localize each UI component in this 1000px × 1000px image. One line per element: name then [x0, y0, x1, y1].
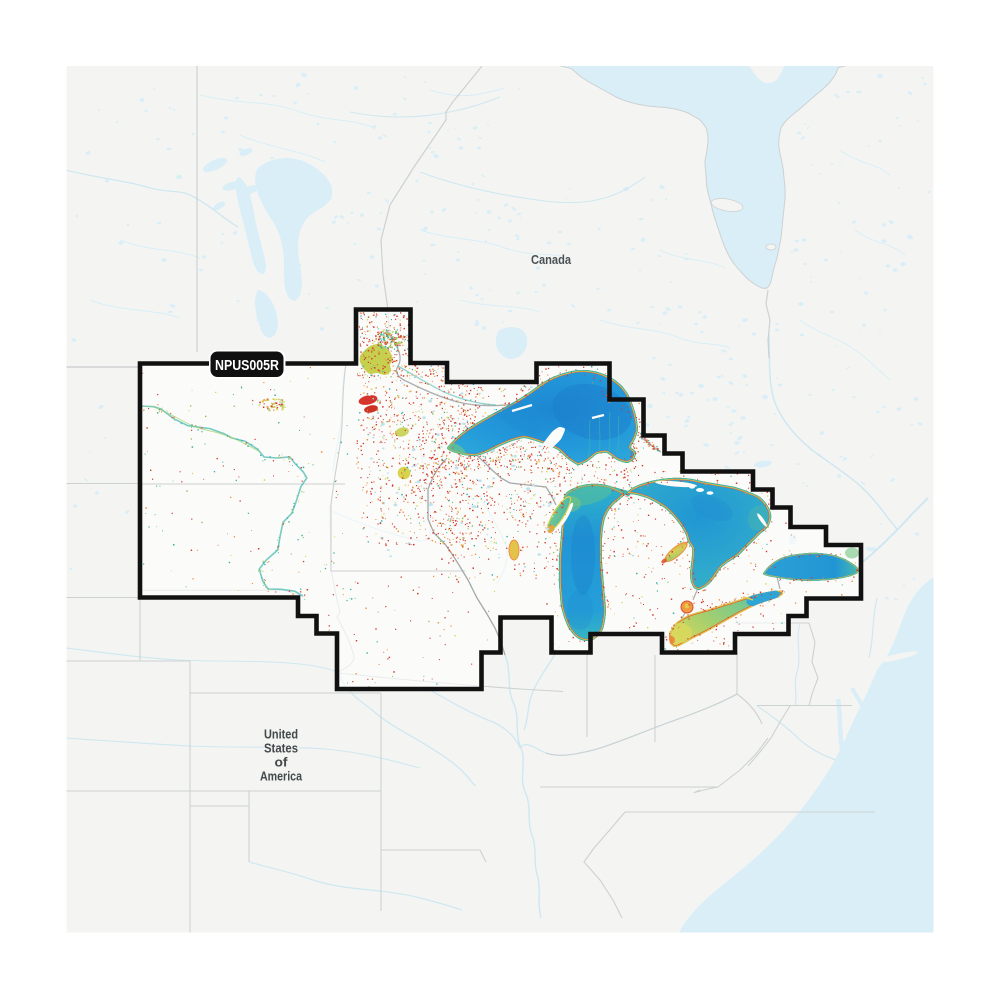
svg-text:America: America [260, 769, 303, 784]
svg-text:of: of [275, 755, 289, 770]
svg-text:Canada: Canada [531, 252, 572, 267]
svg-text:States: States [264, 741, 298, 756]
svg-text:United: United [264, 727, 298, 742]
svg-text:NPUS005R: NPUS005R [215, 358, 279, 374]
